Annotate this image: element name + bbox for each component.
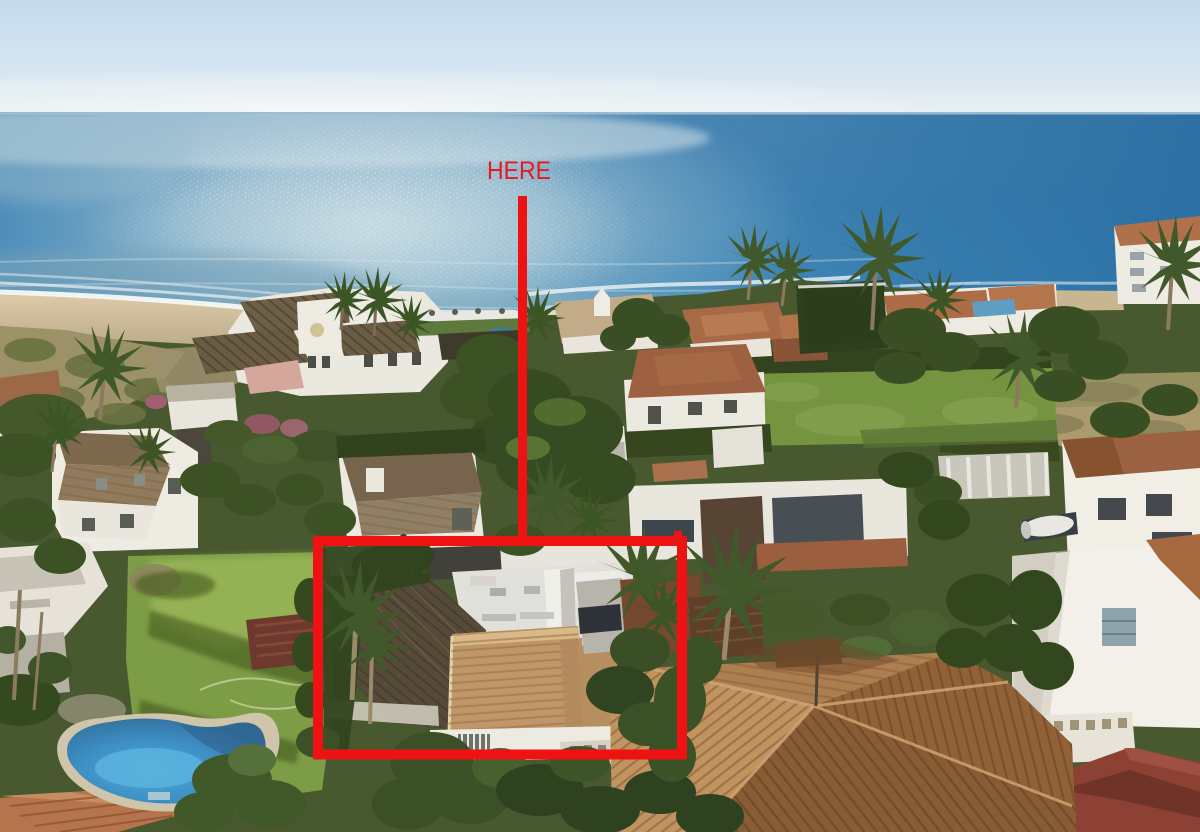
svg-text:HERE: HERE — [487, 157, 551, 185]
